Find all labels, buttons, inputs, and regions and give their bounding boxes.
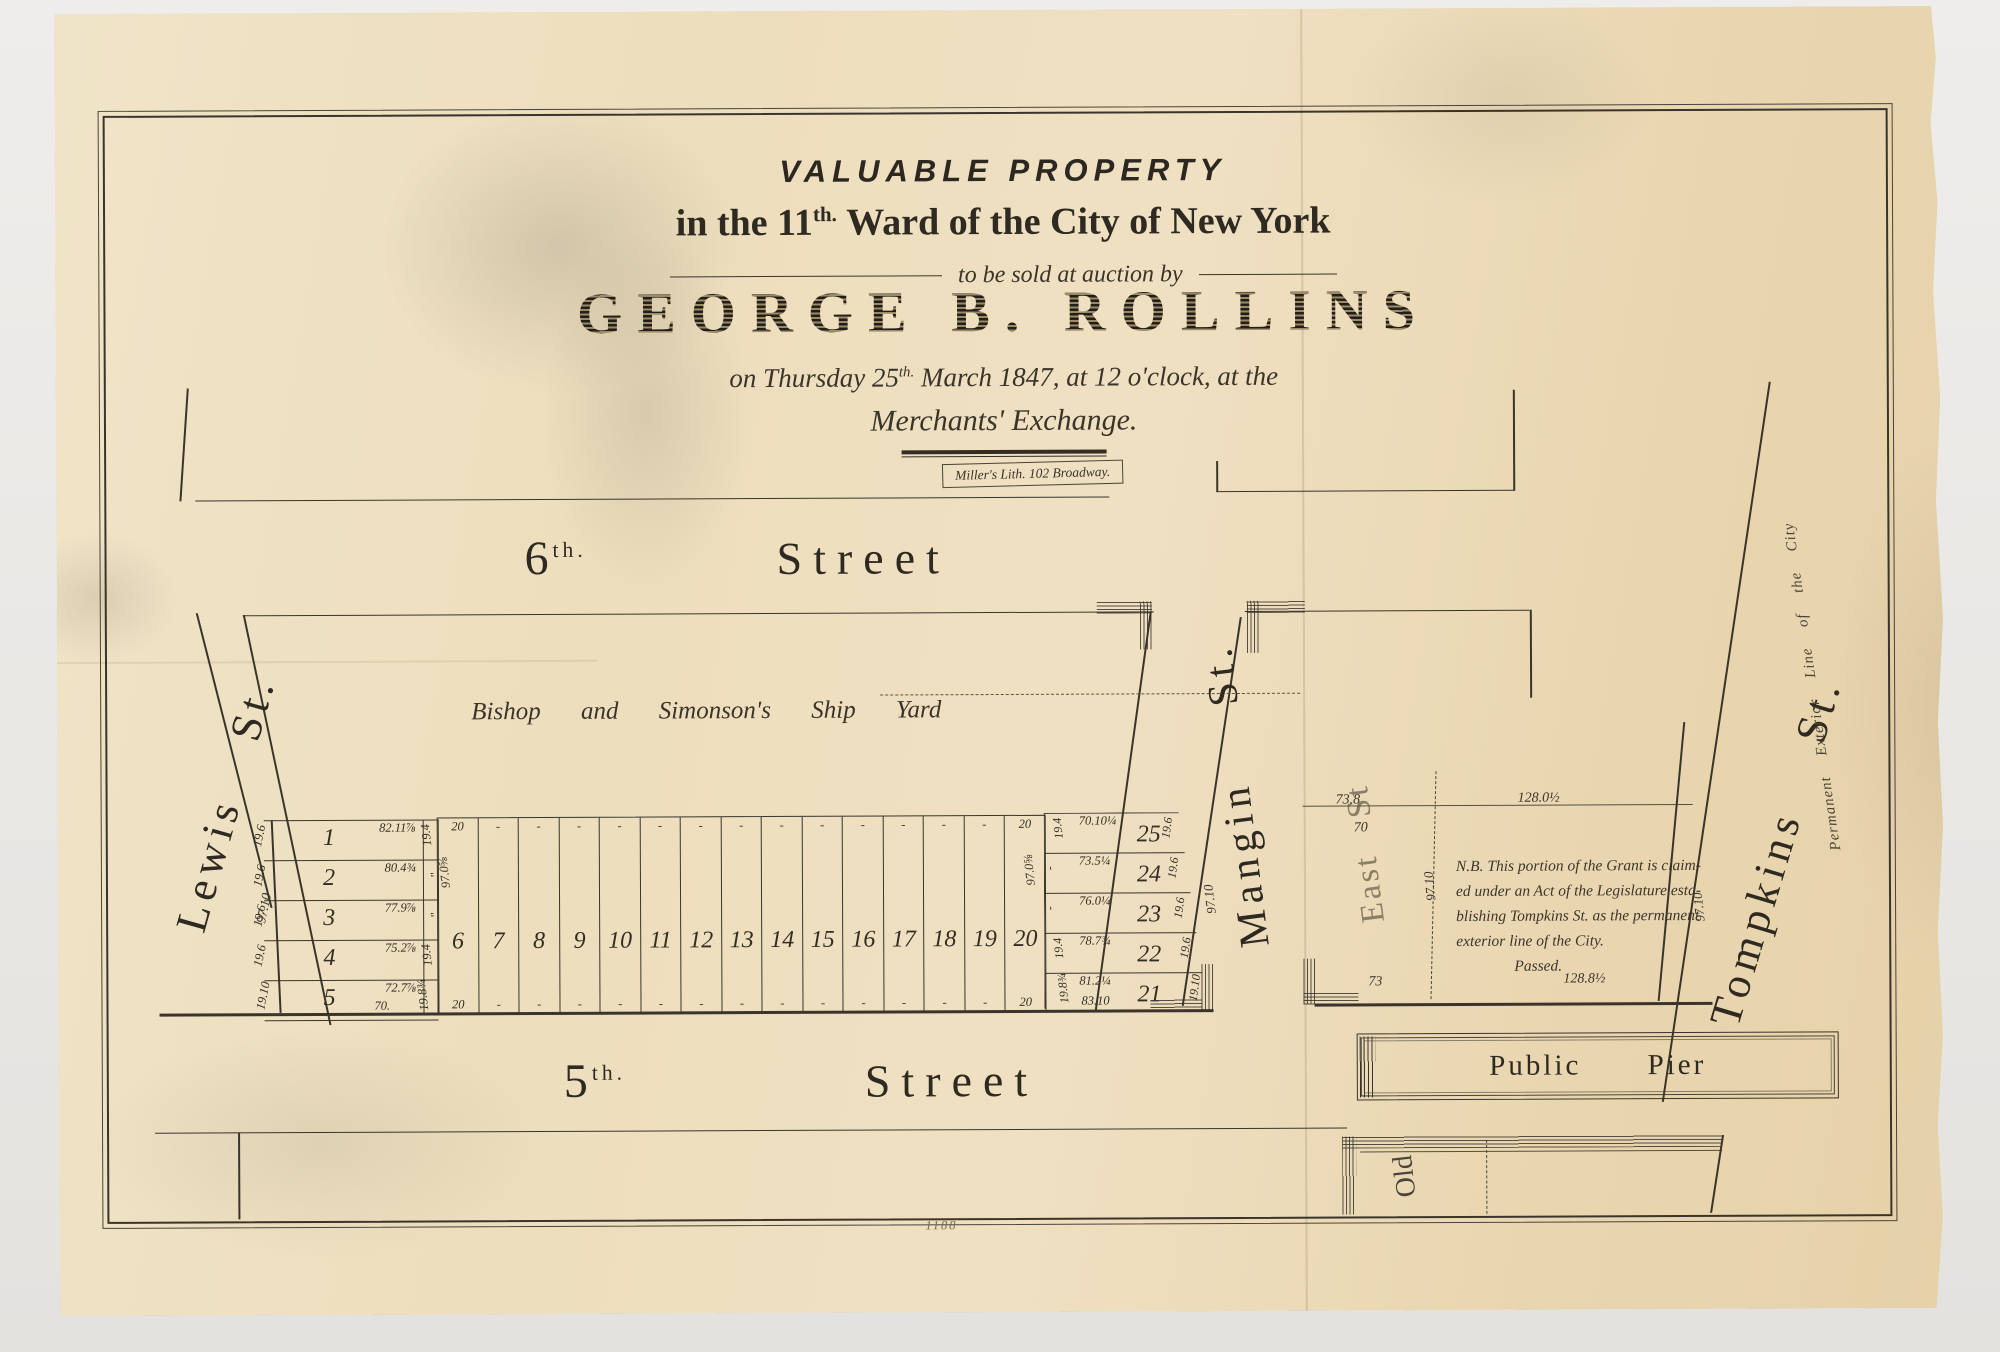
lot-23-frontage: 76.0¼ [1079,894,1110,909]
auction-date-line: on Thursday 25th. March 1847, at 12 o'cl… [729,361,1278,394]
public-pier-label: Public Pier [1489,1049,1706,1083]
lot-25-left-dim: 19.4 [1050,817,1067,840]
title-line-2: in the 11th. Ward of the City of New Yor… [676,199,1331,246]
lot-strip-12: -12- [681,817,722,1012]
lot-6-bottom-dim: 20 [438,997,478,1012]
right-rule [1199,273,1337,275]
lot-8-top-dim: - [519,819,559,834]
lot-23-number: 23 [1137,901,1161,928]
street-5th-number: 5 [564,1055,592,1108]
lot-11-top-dim: - [640,818,680,833]
title-line-2-superscript: th. [813,202,837,226]
lot-row-22: 78.7¾ 22 19.4 19.6 [1045,933,1215,974]
east-dim-upper-left: 70 [1354,820,1368,836]
street-5th-superscript: th. [592,1061,626,1085]
street-label-6th-name: Street [776,531,950,585]
note-line-1: N.B. This portion of the Grant is claim- [1456,853,1728,879]
old-pier-label: Old [1387,1154,1423,1199]
note-line-5: Passed. [1514,953,1728,979]
street-label-5th-name: Street [865,1054,1039,1108]
lot-22-number: 22 [1137,941,1161,968]
lot-strip-8: -8- [519,818,560,1013]
lot-6-top-dim: 20 [438,819,478,834]
lot-9-top-dim: - [559,819,599,834]
lot-strip-16: -16- [843,817,884,1012]
lot-row-4: 19.6 4 75.2⅞ 19.4 [264,940,438,981]
lot-row-5: 19.10 5 72.7⅞ 19.8¾ [264,980,438,1021]
public-pier: Public Pier [1357,1031,1839,1100]
street-label-5th: 5th. [564,1054,626,1109]
lot-16-bottom-dim: - [844,996,884,1011]
lithographer-imprint: Miller's Lith. 102 Broadway. [942,460,1124,489]
lot-block-middle: 20620 -7- -8- -9- -10- -11- -12- -13- -1… [437,815,1047,1015]
lot-row-3: 19.6 3 77.9⅞ " [264,900,438,941]
lot-1-right-dim: 19.4 [418,823,435,846]
lot-strip-17: -17- [884,816,925,1011]
lot-2-left-dim: 19.6 [250,864,269,888]
title-line-2-post: Ward of the City of New York [846,200,1330,244]
corner-hatch [1150,999,1202,1011]
lot-8-number: 8 [519,928,559,955]
lot-18-bottom-dim: - [925,995,965,1010]
lot-9-bottom-dim: - [560,997,600,1012]
lot-row-1: 19.6 1 82.11⅞ 19.4 [264,820,438,861]
lot-strip-7: -7- [478,818,519,1013]
lot-1-frontage: 82.11⅞ [379,821,416,836]
lot-25-frontage: 70.10¼ [1079,814,1117,829]
pier-hatching [1342,1135,1722,1149]
shipyard-label: Bishop and Simonson's Ship Yard [471,696,941,726]
lot-20-bottom-dim: 20 [1006,995,1046,1010]
lot-strip-9: -9- [559,818,600,1013]
east-dim-top-right: 128.0½ [1518,791,1560,807]
lot-10-top-dim: - [600,819,640,834]
lot-20-number: 20 [1006,926,1046,953]
lot-24-number: 24 [1137,861,1161,888]
lot-17-number: 17 [884,926,924,953]
date-post: March 1847, at 12 o'clock, at the [921,361,1278,393]
lot-22-right-dim: 19.6 [1177,936,1195,959]
lot-8-bottom-dim: - [520,997,560,1012]
lot-2-number: 2 [323,865,335,892]
grant-note: N.B. This portion of the Grant is claim-… [1456,853,1729,980]
map-sheet: VALUABLE PROPERTY in the 11th. Ward of t… [54,6,1950,1316]
lot-10-number: 10 [600,928,640,955]
lot-6-number: 6 [438,928,478,955]
date-pre: on Thursday 25 [729,362,899,393]
lot-13-bottom-dim: - [722,996,762,1011]
lot-12-number: 12 [681,927,721,954]
lot-4-right-dim: 19.4 [419,943,436,966]
lot-strip-10: -10- [600,818,641,1013]
corner-hatch [1140,601,1152,649]
lot-10-bottom-dim: - [601,997,641,1012]
street-6th-superscript: th. [552,538,586,562]
lot-23-left-dim: - [1042,905,1057,911]
lot-25-number: 25 [1137,821,1161,848]
lot-1-number: 1 [323,825,335,852]
lot-19-number: 19 [965,926,1005,953]
lot-4-left-dim: 19.6 [251,944,270,968]
lot-3-frontage: 77.9⅞ [385,901,416,916]
lot-strip-18: -18- [924,816,965,1011]
lot-16-top-dim: - [843,818,883,833]
lot-5-bottom-dim: 70. [374,999,390,1014]
lot-3-number: 3 [323,905,335,932]
lot-15-bottom-dim: - [803,996,843,1011]
lot-13-number: 13 [722,927,762,954]
lot-24-left-dim: - [1042,865,1057,871]
lot-15-top-dim: - [802,818,842,833]
lot-7-bottom-dim: - [479,997,519,1012]
lot-14-bottom-dim: - [763,996,803,1011]
left-rule [670,275,942,278]
lot-13-top-dim: - [721,818,761,833]
lot-7-number: 7 [479,928,519,955]
street-label-6th: 6th. [524,531,586,586]
lot-5-right-dim: 19.8¾ [414,979,432,1012]
lot-19-bottom-dim: - [965,995,1005,1010]
north-block-right-small-edge [1216,461,1218,492]
auctioneer-name: GEORGE B. ROLLINS [577,280,1430,345]
lot-21-frontage: 81.2¼ [1079,974,1110,989]
pier-hatching [1342,1136,1356,1214]
lot-16-number: 16 [843,927,883,954]
lot-14-number: 14 [762,927,802,954]
title-line-1: VALUABLE PROPERTY [779,152,1226,190]
lot-22-frontage: 78.7¾ [1079,934,1110,949]
lot-strip-20: 202020 [1005,816,1045,1011]
lot-23-right-dim: 19.6 [1171,896,1189,919]
lot-12-bottom-dim: - [682,996,722,1011]
lot-22-left-dim: 19.4 [1050,937,1067,960]
east-dashed-depth-dim: 97.10 [1420,871,1439,902]
lot-11-number: 11 [641,927,681,954]
lot-18-number: 18 [925,926,965,953]
old-pier: Old [1342,1135,1734,1215]
date-superscript: th. [899,364,914,380]
lot-11-bottom-dim: - [641,996,681,1011]
auction-venue: Merchants' Exchange. [870,403,1137,438]
lot-21-left-dim: 19.8¾ [1054,973,1072,1004]
lot-5-number: 5 [324,985,336,1012]
note-line-2: ed under an Act of the Legislature esta- [1456,878,1728,904]
east-dim-top-left: 73.8 [1336,792,1361,808]
east-dim-bottom-left: 73 [1368,974,1382,990]
lot-19-top-dim: - [965,817,1005,832]
pier-hatching [1360,1036,1376,1097]
lot-row-2: 19.6 2 80.4¾ " [264,860,438,901]
lot-strip-6: 20620 [438,818,479,1013]
lot-strip-11: -11- [640,817,681,1012]
lot-24-right-dim: 19.6 [1165,856,1183,879]
lot-1-left-dim: 19.6 [250,824,269,848]
lot-4-frontage: 75.2⅞ [385,941,416,956]
lot-7-top-dim: - [478,819,518,834]
lot-strip-14: -14- [762,817,803,1012]
title-line-2-pre: in the 11 [676,202,813,245]
lot-15-number: 15 [803,927,843,954]
lot-3-left-dim: 19.6 [250,904,269,928]
lot-21-bottom-dim: 83.10 [1081,994,1109,1009]
lot-strip-19: -19- [965,816,1006,1011]
corner-hatch [1303,992,1358,1004]
street-6th-number: 6 [524,532,552,585]
lot-5-frontage: 72.7⅞ [385,981,416,996]
lot-24-frontage: 73.5¼ [1079,854,1110,869]
lot-9-number: 9 [560,928,600,955]
old-pier-inner-line [1360,1150,1722,1153]
lot-strip-13: -13- [721,817,762,1012]
lot-row-23: 76.0¼ 23 - 19.6 [1045,893,1215,934]
corner-hatch [1247,601,1259,653]
corner-hatch [1201,964,1213,1010]
lot-4-number: 4 [323,945,335,972]
lot-strip-15: -15- [802,817,843,1012]
lot-25-right-dim: 19.6 [1158,816,1176,839]
lot-2-frontage: 80.4¾ [385,861,416,876]
lot-18-top-dim: - [924,817,964,832]
lot-17-bottom-dim: - [884,995,924,1010]
plate-number: 1188 [925,1218,957,1233]
lot-12-top-dim: - [681,818,721,833]
lot-20-top-dim: 20 [1005,817,1045,832]
venue-underline [902,450,1107,457]
lot-14-top-dim: - [762,818,802,833]
lot-17-top-dim: - [884,817,924,832]
lot-block-left: 19.6 1 82.11⅞ 19.4 19.6 2 80.4¾ " 19.6 3… [264,819,440,1016]
